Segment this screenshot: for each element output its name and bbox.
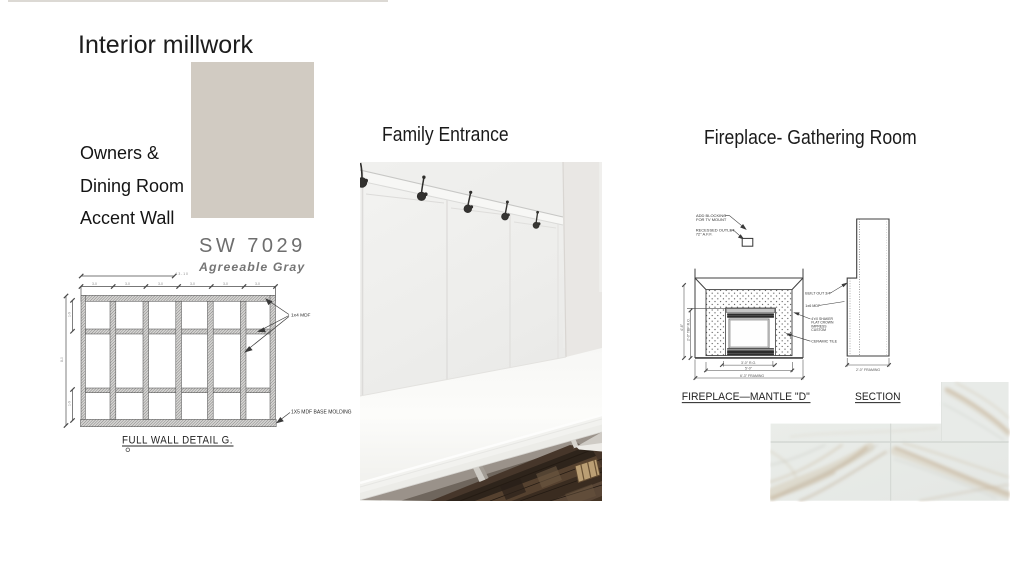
svg-text:4'-6": 4'-6" <box>680 323 684 331</box>
svg-text:2'-0" FRAMING: 2'-0" FRAMING <box>856 368 880 372</box>
svg-text:1X5 MDF BASE MOLDING: 1X5 MDF BASE MOLDING <box>291 410 352 416</box>
svg-text:3-0: 3-0 <box>125 282 130 286</box>
svg-text:3'-0" R.O.: 3'-0" R.O. <box>741 361 756 365</box>
svg-text:1x4 MDF: 1x4 MDF <box>291 313 311 319</box>
svg-text:CERAMIC TILE: CERAMIC TILE <box>811 340 837 344</box>
svg-text:1x6 MDF: 1x6 MDF <box>805 304 821 308</box>
svg-text:2'-0" TBP R.O.: 2'-0" TBP R.O. <box>687 318 691 341</box>
svg-text:8-0: 8-0 <box>60 357 64 362</box>
svg-text:5'-0": 5'-0" <box>745 366 753 370</box>
svg-text:1-9: 1-9 <box>67 312 71 317</box>
svg-text:BUILT OUT 3/4": BUILT OUT 3/4" <box>805 292 832 296</box>
svg-text:72" A.F.F.: 72" A.F.F. <box>696 231 713 236</box>
svg-text:FOR TV MOUNT: FOR TV MOUNT <box>696 217 727 222</box>
svg-text:3-0: 3-0 <box>92 282 97 286</box>
svg-text:FULL WALL DETAIL G.: FULL WALL DETAIL G. <box>122 435 233 447</box>
svg-text:3-0: 3-0 <box>190 282 195 286</box>
svg-text:CUSTOM: CUSTOM <box>811 328 826 332</box>
svg-text:1 3 - 1 0: 1 3 - 1 0 <box>176 272 189 276</box>
svg-text:3-0: 3-0 <box>255 282 260 286</box>
svg-text:1-9: 1-9 <box>67 401 71 406</box>
svg-text:6'-3" FRAMING: 6'-3" FRAMING <box>740 374 764 378</box>
svg-text:3-0: 3-0 <box>158 282 163 286</box>
svg-text:3-0: 3-0 <box>223 282 228 286</box>
